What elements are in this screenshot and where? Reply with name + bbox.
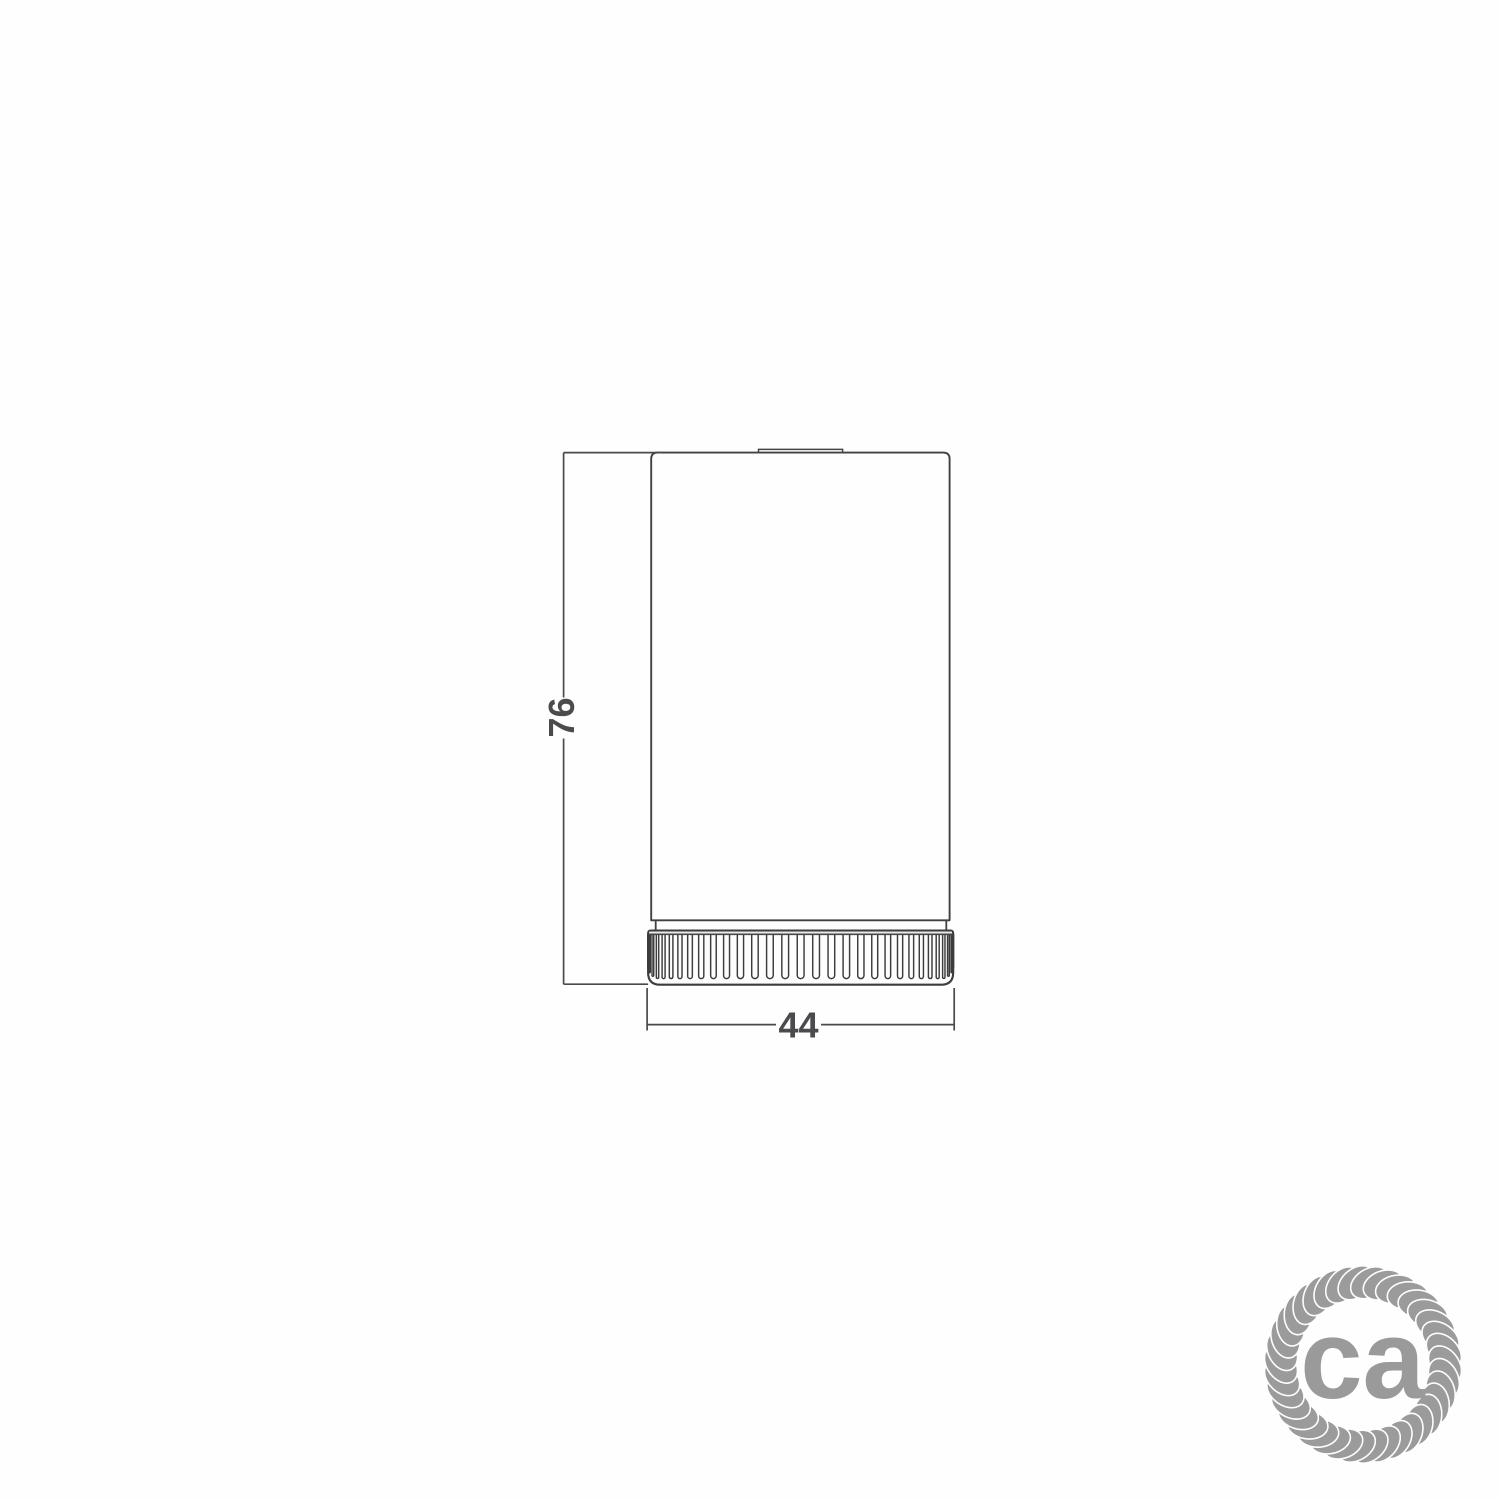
svg-text:76: 76 (541, 697, 582, 737)
svg-text:44: 44 (778, 1005, 818, 1046)
svg-text:ca: ca (1300, 1297, 1425, 1422)
